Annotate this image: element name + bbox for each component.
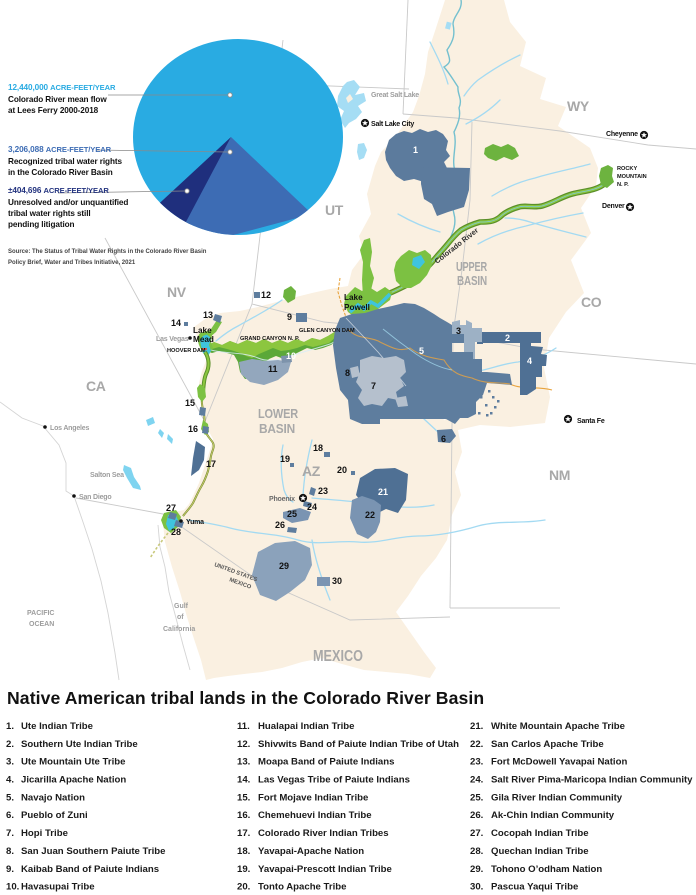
- svg-text:15.: 15.: [237, 792, 250, 803]
- svg-text:27: 27: [166, 503, 176, 513]
- svg-text:Colorado River Indian Tribes: Colorado River Indian Tribes: [258, 828, 389, 839]
- svg-text:Yuma: Yuma: [186, 519, 204, 526]
- svg-text:CO: CO: [581, 294, 602, 310]
- svg-text:California: California: [163, 626, 195, 633]
- svg-text:21: 21: [378, 487, 388, 497]
- svg-text:Havasupai Tribe: Havasupai Tribe: [21, 882, 95, 893]
- svg-text:30.: 30.: [470, 882, 483, 893]
- svg-text:GRAND CANYON N. P.: GRAND CANYON N. P.: [240, 336, 300, 342]
- svg-text:3: 3: [456, 326, 461, 336]
- svg-text:NV: NV: [167, 284, 187, 300]
- svg-text:in the Colorado River Basin: in the Colorado River Basin: [8, 168, 113, 177]
- svg-text:Southern Ute Indian Tribe: Southern Ute Indian Tribe: [21, 739, 138, 750]
- svg-text:BASIN: BASIN: [457, 274, 487, 288]
- svg-text:29.: 29.: [470, 864, 483, 875]
- svg-text:9: 9: [287, 312, 292, 322]
- svg-text:1: 1: [413, 145, 418, 155]
- svg-text:6: 6: [441, 434, 446, 444]
- svg-text:16.: 16.: [237, 810, 250, 821]
- svg-text:17: 17: [206, 459, 216, 469]
- svg-text:Cocopah Indian Tribe: Cocopah Indian Tribe: [491, 828, 589, 839]
- svg-text:Shivwits Band of Paiute Indian: Shivwits Band of Paiute Indian Tribe of …: [258, 739, 459, 750]
- svg-text:Tonto Apache Tribe: Tonto Apache Tribe: [258, 882, 346, 893]
- svg-text:4: 4: [527, 356, 532, 366]
- svg-text:ROCKY: ROCKY: [617, 166, 637, 172]
- svg-text:UT: UT: [325, 202, 344, 218]
- svg-text:28.: 28.: [470, 846, 483, 857]
- svg-text:10: 10: [286, 351, 296, 361]
- svg-text:tribal water rights still: tribal water rights still: [8, 209, 91, 218]
- svg-text:pending litigation: pending litigation: [8, 220, 75, 229]
- svg-text:Gulf: Gulf: [174, 603, 189, 610]
- svg-text:White Mountain Apache Tribe: White Mountain Apache Tribe: [491, 721, 625, 732]
- svg-text:25.: 25.: [470, 792, 483, 803]
- svg-text:16: 16: [188, 424, 198, 434]
- svg-text:Source: The Status of Tribal W: Source: The Status of Tribal Water Right…: [8, 249, 207, 255]
- svg-text:2.: 2.: [6, 739, 14, 750]
- svg-text:24: 24: [307, 502, 317, 512]
- svg-text:13.: 13.: [237, 757, 250, 768]
- svg-text:MOUNTAIN: MOUNTAIN: [617, 174, 647, 180]
- svg-text:Moapa Band of Paiute Indians: Moapa Band of Paiute Indians: [258, 757, 394, 768]
- svg-text:1.: 1.: [6, 721, 14, 732]
- svg-text:Cheyenne: Cheyenne: [606, 131, 638, 138]
- svg-text:San Carlos Apache Tribe: San Carlos Apache Tribe: [491, 739, 604, 750]
- svg-text:8.: 8.: [6, 846, 14, 857]
- svg-text:Hopi Tribe: Hopi Tribe: [21, 828, 68, 839]
- svg-text:Phoenix: Phoenix: [269, 496, 295, 503]
- svg-text:10.: 10.: [6, 882, 19, 893]
- svg-text:20: 20: [337, 465, 347, 475]
- svg-text:26.: 26.: [470, 810, 483, 821]
- svg-text:Las Vegas Tribe of Paiute Indi: Las Vegas Tribe of Paiute Indians: [258, 775, 410, 786]
- svg-text:2: 2: [505, 333, 510, 343]
- svg-text:GLEN CANYON DAM: GLEN CANYON DAM: [299, 328, 355, 334]
- svg-text:14.: 14.: [237, 775, 250, 786]
- svg-text:MEXICO: MEXICO: [313, 648, 363, 665]
- svg-text:18.: 18.: [237, 846, 250, 857]
- svg-text:6.: 6.: [6, 810, 14, 821]
- svg-text:12.: 12.: [237, 739, 250, 750]
- svg-text:Hualapai Indian Tribe: Hualapai Indian Tribe: [258, 721, 355, 732]
- svg-text:CA: CA: [86, 378, 106, 394]
- svg-text:Great Salt Lake: Great Salt Lake: [371, 92, 419, 99]
- svg-text:BASIN: BASIN: [259, 422, 295, 436]
- svg-text:Fort Mojave Indian Tribe: Fort Mojave Indian Tribe: [258, 792, 368, 803]
- svg-text:27.: 27.: [470, 828, 483, 839]
- svg-text:UPPER: UPPER: [456, 260, 487, 274]
- svg-text:LOWER: LOWER: [258, 407, 298, 421]
- svg-text:of: of: [177, 614, 184, 621]
- svg-text:23.: 23.: [470, 757, 483, 768]
- svg-text:Lake: Lake: [193, 326, 212, 335]
- svg-text:22.: 22.: [470, 739, 483, 750]
- svg-text:12: 12: [261, 290, 271, 300]
- svg-text:19.: 19.: [237, 864, 250, 875]
- svg-text:Salt River Pima-Maricopa India: Salt River Pima-Maricopa Indian Communit…: [491, 775, 693, 786]
- svg-text:Ute Mountain Ute Tribe: Ute Mountain Ute Tribe: [21, 757, 125, 768]
- svg-text:Lake: Lake: [344, 293, 363, 302]
- svg-text:30: 30: [332, 576, 342, 586]
- svg-text:15: 15: [185, 398, 195, 408]
- svg-text:±404,696 ACRE-FEET/YEAR: ±404,696 ACRE-FEET/YEAR: [8, 186, 109, 195]
- svg-text:Salt Lake City: Salt Lake City: [371, 121, 414, 128]
- svg-text:Navajo Nation: Navajo Nation: [21, 792, 85, 803]
- svg-text:3,206,088 ACRE-FEET/YEAR: 3,206,088 ACRE-FEET/YEAR: [8, 145, 112, 154]
- svg-text:Fort McDowell Yavapai Nation: Fort McDowell Yavapai Nation: [491, 757, 627, 768]
- svg-text:San Diego: San Diego: [79, 494, 111, 501]
- svg-text:28: 28: [171, 527, 181, 537]
- svg-text:Los Angeles: Los Angeles: [50, 425, 89, 432]
- svg-text:19: 19: [280, 454, 290, 464]
- svg-text:at Lees Ferry 2000-2018: at Lees Ferry 2000-2018: [8, 106, 99, 115]
- svg-text:12,440,000 ACRE-FEET/YEAR: 12,440,000 ACRE-FEET/YEAR: [8, 83, 116, 92]
- svg-text:Unresolved and/or unquantified: Unresolved and/or unquantified: [8, 198, 128, 207]
- svg-text:OCEAN: OCEAN: [29, 621, 54, 628]
- svg-text:Gila River Indian Community: Gila River Indian Community: [491, 792, 623, 803]
- svg-text:Mead: Mead: [193, 335, 214, 344]
- svg-text:Ute Indian Tribe: Ute Indian Tribe: [21, 721, 93, 732]
- svg-text:25: 25: [287, 509, 297, 519]
- svg-text:20.: 20.: [237, 882, 250, 893]
- svg-text:Jicarilla Apache Nation: Jicarilla Apache Nation: [21, 775, 126, 786]
- svg-text:WY: WY: [567, 98, 590, 114]
- svg-text:Policy Brief, Water and Tribes: Policy Brief, Water and Tribes Initiativ…: [8, 260, 136, 266]
- svg-text:Salton Sea: Salton Sea: [90, 472, 124, 479]
- svg-text:21.: 21.: [470, 721, 483, 732]
- svg-text:Tohono O’odham Nation: Tohono O’odham Nation: [491, 864, 602, 875]
- svg-text:Chemehuevi Indian Tribe: Chemehuevi Indian Tribe: [258, 810, 372, 821]
- svg-text:9.: 9.: [6, 864, 14, 875]
- svg-text:Pueblo of Zuni: Pueblo of Zuni: [21, 810, 88, 821]
- svg-text:Yavapai-Prescott Indian Tribe: Yavapai-Prescott Indian Tribe: [258, 864, 392, 875]
- svg-text:14: 14: [171, 318, 181, 328]
- svg-text:7.: 7.: [6, 828, 14, 839]
- svg-text:Yavapai-Apache Nation: Yavapai-Apache Nation: [258, 846, 364, 857]
- svg-text:18: 18: [313, 443, 323, 453]
- svg-text:11.: 11.: [237, 721, 250, 732]
- svg-text:13: 13: [203, 310, 213, 320]
- svg-text:Recognized tribal water rights: Recognized tribal water rights: [8, 157, 122, 166]
- svg-text:8: 8: [345, 368, 350, 378]
- svg-text:N. P.: N. P.: [617, 182, 629, 188]
- svg-text:17.: 17.: [237, 828, 250, 839]
- svg-text:Las Vegas: Las Vegas: [156, 336, 189, 343]
- svg-text:23: 23: [318, 486, 328, 496]
- svg-text:Ak-Chin Indian Community: Ak-Chin Indian Community: [491, 810, 615, 821]
- svg-text:NM: NM: [549, 467, 570, 483]
- svg-text:Colorado River mean flow: Colorado River mean flow: [8, 95, 107, 104]
- svg-text:3.: 3.: [6, 757, 14, 768]
- svg-text:24.: 24.: [470, 775, 483, 786]
- svg-text:11: 11: [268, 364, 278, 374]
- svg-text:7: 7: [371, 381, 376, 391]
- svg-text:AZ: AZ: [302, 463, 321, 479]
- svg-text:San Juan Southern Paiute Tribe: San Juan Southern Paiute Tribe: [21, 846, 165, 857]
- svg-text:Native American tribal lands i: Native American tribal lands in the Colo…: [7, 688, 484, 708]
- svg-text:Quechan Indian Tribe: Quechan Indian Tribe: [491, 846, 589, 857]
- svg-text:Pascua Yaqui Tribe: Pascua Yaqui Tribe: [491, 882, 578, 893]
- svg-text:26: 26: [275, 520, 285, 530]
- svg-text:PACIFIC: PACIFIC: [27, 610, 54, 617]
- svg-text:Powell: Powell: [344, 303, 370, 312]
- svg-text:22: 22: [365, 510, 375, 520]
- svg-text:Santa Fe: Santa Fe: [577, 418, 605, 425]
- svg-text:5.: 5.: [6, 792, 14, 803]
- svg-text:4.: 4.: [6, 775, 14, 786]
- svg-text:Kaibab Band of Paiute Indians: Kaibab Band of Paiute Indians: [21, 864, 159, 875]
- svg-text:5: 5: [419, 346, 424, 356]
- svg-text:HOOVER DAM: HOOVER DAM: [167, 348, 206, 354]
- svg-text:29: 29: [279, 561, 289, 571]
- svg-text:Denver: Denver: [602, 203, 625, 210]
